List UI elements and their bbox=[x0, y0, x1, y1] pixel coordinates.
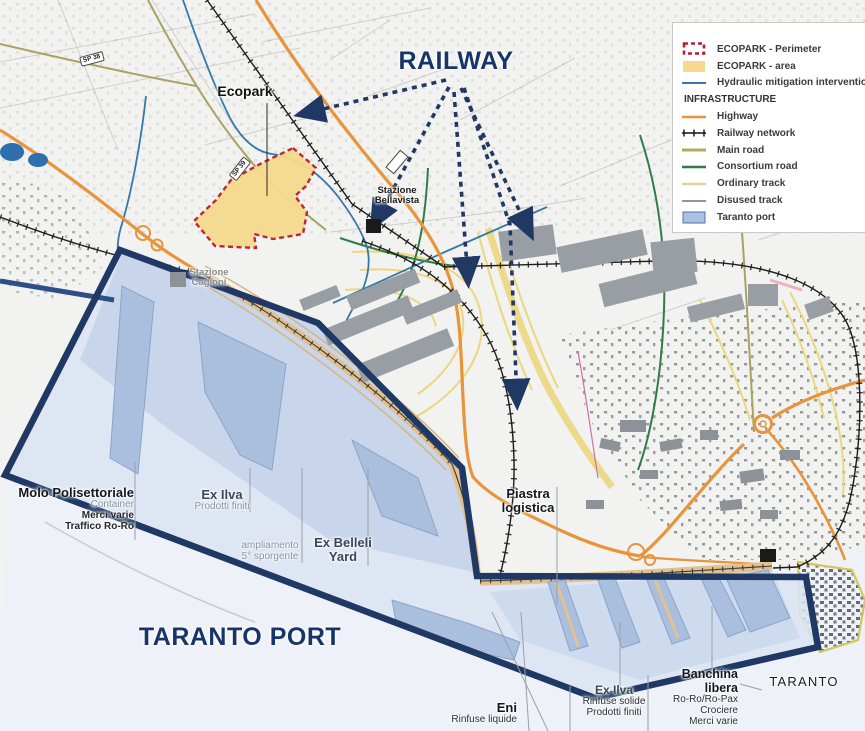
legend-label: Railway network bbox=[717, 128, 795, 139]
legend-row-hydraulic: Hydraulic mitigation interventions bbox=[673, 75, 865, 92]
zone-ampliamento-line2: 5° sporgente bbox=[241, 552, 298, 563]
legend-row-main-road: Main road bbox=[673, 142, 865, 159]
legend-row-ecopark-area: ECOPARK - area bbox=[673, 58, 865, 75]
legend-row-consortium-road: Consortium road bbox=[673, 159, 865, 176]
zone-ampliamento: ampliamento 5° sporgente bbox=[241, 541, 298, 563]
legend-label: Ordinary track bbox=[717, 178, 785, 189]
zone-eni-sub: Rinfuse liquide bbox=[420, 715, 517, 726]
zone-ex-ilva-west-title: Ex Ilva bbox=[194, 488, 249, 502]
zone-ex-belleli: Ex Belleli Yard bbox=[314, 536, 372, 564]
railway-line-swatch bbox=[682, 127, 708, 139]
legend-row-taranto-port: Taranto port bbox=[673, 209, 865, 226]
legend-label: ECOPARK - area bbox=[717, 61, 796, 72]
zone-ex-ilva-west: Ex Ilva Prodotti finiti bbox=[194, 488, 249, 513]
legend-label: Highway bbox=[717, 111, 758, 122]
legend-row-ecopark-perimeter: ECOPARK - Perimeter bbox=[673, 41, 865, 58]
taranto-port-callout: TARANTO PORT bbox=[139, 624, 341, 651]
legend-label: Disused track bbox=[717, 195, 783, 206]
highway-line-swatch bbox=[682, 112, 708, 122]
zone-molo-line1: Merci varie bbox=[8, 511, 134, 522]
stazione-bellavista-label: Stazione Bellavista bbox=[375, 186, 419, 207]
zone-piastra-line2: logistica bbox=[502, 501, 555, 515]
zone-ex-ilva-east-title: Ex Ilva bbox=[583, 684, 646, 697]
hydraulic-line-swatch bbox=[682, 78, 708, 88]
zone-molo-title: Molo Polisettoriale bbox=[8, 486, 134, 500]
zone-banchina-title2: libera bbox=[650, 682, 738, 696]
main-road-line-swatch bbox=[682, 145, 708, 155]
legend-row-ordinary-track: Ordinary track bbox=[673, 175, 865, 192]
zone-molo-line2: Traffico Ro-Ro bbox=[8, 522, 134, 533]
zone-eni-title: Eni bbox=[420, 701, 517, 715]
railway-callout: RAILWAY bbox=[398, 48, 513, 75]
map-screenshot: RAILWAY Ecopark SP 38 SP 39 Stazione Bel… bbox=[0, 0, 865, 731]
zone-ex-belleli-line1: Ex Belleli bbox=[314, 536, 372, 550]
bellavista-station-icon bbox=[366, 219, 381, 233]
taranto-station-icon bbox=[760, 549, 776, 562]
zone-ex-ilva-west-sub: Prodotti finiti bbox=[194, 502, 249, 513]
legend-row-railway-network: Railway network bbox=[673, 125, 865, 142]
zone-banchina-libera: Banchina libera Ro-Ro/Ro-Pax Crociere Me… bbox=[650, 668, 738, 727]
stazione-cagioni-label: Stazione Cagioni bbox=[189, 268, 228, 289]
legend-row-infrastructure-header: INFRASTRUCTURE bbox=[673, 91, 865, 108]
ecopark-perimeter-swatch bbox=[682, 42, 708, 56]
zone-ex-belleli-line2: Yard bbox=[314, 550, 372, 564]
zone-ex-ilva-east-sub2: Prodotti finiti bbox=[583, 708, 646, 719]
zone-piastra-logistica: Piastra logistica bbox=[502, 487, 555, 515]
legend-label: Taranto port bbox=[717, 212, 775, 223]
legend-row-highway: Highway bbox=[673, 108, 865, 125]
consortium-road-line-swatch bbox=[682, 162, 708, 172]
ecopark-area-swatch bbox=[682, 60, 708, 73]
ordinary-track-line-swatch bbox=[682, 179, 708, 189]
legend-label: Main road bbox=[717, 145, 764, 156]
zone-banchina-sub2: Crociere bbox=[650, 706, 738, 717]
cagioni-station-icon bbox=[170, 272, 186, 287]
taranto-port-swatch bbox=[682, 211, 708, 224]
legend-label: Hydraulic mitigation interventions bbox=[717, 77, 865, 88]
zone-ex-ilva-east: Ex Ilva Rinfuse solide Prodotti finiti bbox=[583, 684, 646, 719]
taranto-city-label: TARANTO bbox=[769, 675, 838, 689]
ecopark-label: Ecopark bbox=[217, 84, 272, 99]
stazione-cagioni-line2: Cagioni bbox=[189, 278, 228, 288]
stazione-bellavista-line2: Bellavista bbox=[375, 196, 419, 206]
zone-molo-polisettoriale: Molo Polisettoriale Container Merci vari… bbox=[8, 486, 134, 532]
legend-label: ECOPARK - Perimeter bbox=[717, 44, 821, 55]
legend: ECOPARK - Perimeter ECOPARK - area Hydra… bbox=[672, 22, 865, 233]
zone-banchina-title1: Banchina bbox=[650, 668, 738, 682]
disused-track-line-swatch bbox=[682, 196, 708, 206]
legend-row-disused-track: Disused track bbox=[673, 192, 865, 209]
legend-label: Consortium road bbox=[717, 161, 798, 172]
zone-piastra-line1: Piastra bbox=[502, 487, 555, 501]
legend-section-header: INFRASTRUCTURE bbox=[684, 94, 776, 105]
zone-banchina-sub3: Merci varie bbox=[650, 717, 738, 728]
zone-eni: Eni Rinfuse liquide bbox=[420, 701, 517, 726]
